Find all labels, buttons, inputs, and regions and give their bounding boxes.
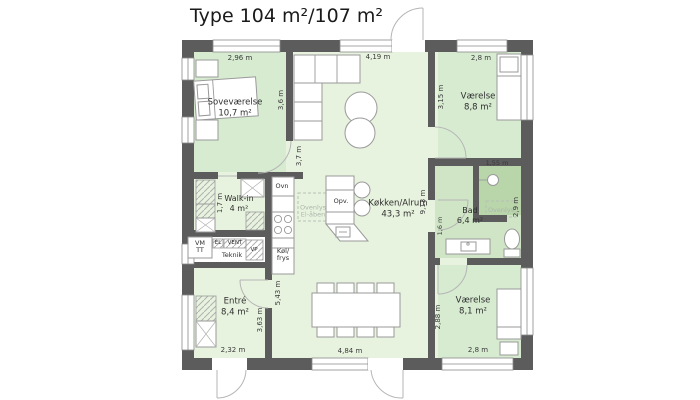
label-el: EL (215, 240, 222, 246)
label-entre: Entré8,4 m² (221, 296, 249, 317)
nightstand (196, 120, 218, 140)
dim-5-43: 5,43 m (274, 281, 282, 306)
single-bed-bottom (497, 289, 521, 355)
dim-4-84: 4,84 m (338, 347, 363, 355)
toilet (505, 229, 520, 249)
label-skylight-kitchen: OvenlysEl-åben (300, 205, 326, 220)
single-bed-top (497, 54, 521, 120)
sink (354, 182, 370, 198)
dim-4-19: 4,19 m (366, 53, 391, 61)
nightstand (196, 60, 218, 77)
dim-1-55: 1,55 m (486, 159, 509, 167)
dim-3-15: 3,15 m (437, 85, 445, 110)
dim-3-63: 3,63 m (256, 308, 264, 333)
dim-3-7: 3,7 m (295, 146, 303, 166)
dim-2-32: 2,32 m (221, 346, 246, 354)
entre-front-door (217, 370, 246, 398)
dim-2-8-top: 2,8 m (471, 54, 491, 62)
label-ovn: Ovn (275, 182, 288, 190)
dim-2-8-bottom: 2,8 m (468, 346, 488, 354)
label-vm-tt: VMTT (195, 240, 205, 254)
label-kol-frys: Køl/frys (277, 248, 289, 262)
label-teknik: Teknik (222, 251, 242, 259)
entry-door-opening (212, 358, 247, 370)
front-door (391, 8, 423, 40)
label-vaerelse-bottom: Værelse8,1 m² (456, 295, 491, 316)
shower-head (488, 175, 499, 186)
floorplan-page: Type 104 m²/107 m² (0, 0, 700, 400)
coffee-table (345, 118, 375, 148)
dim-1-7: 1,7 m (216, 193, 224, 213)
label-sovevaerelse: Soveværelse10,7 m² (208, 97, 263, 118)
label-walkin: Walk-in4 m² (224, 194, 253, 214)
label-vent: VENT (228, 240, 243, 246)
dim-2-88: 2,88 m (434, 305, 442, 330)
terrace-door (371, 370, 403, 398)
label-vp: VP (250, 247, 257, 253)
entre-wardrobe (196, 296, 216, 347)
dim-9-13: 9,13 m (419, 190, 427, 215)
dim-3-6: 3,6 m (277, 90, 285, 110)
label-bad: Bad6,4 m² (457, 206, 483, 226)
dim-2-9: 2,9 m (512, 197, 520, 217)
label-vaerelse-top: Værelse8,8 m² (461, 91, 496, 112)
label-opv: Opv. (334, 197, 349, 205)
dim-1-6: 1,6 m (436, 217, 444, 236)
floorplan-drawing (0, 0, 700, 400)
label-skylight-bad: Ovenlys (488, 206, 514, 214)
dim-2-96: 2,96 m (228, 54, 253, 62)
terrace-door-opening (368, 358, 403, 370)
front-door-opening (392, 40, 425, 52)
